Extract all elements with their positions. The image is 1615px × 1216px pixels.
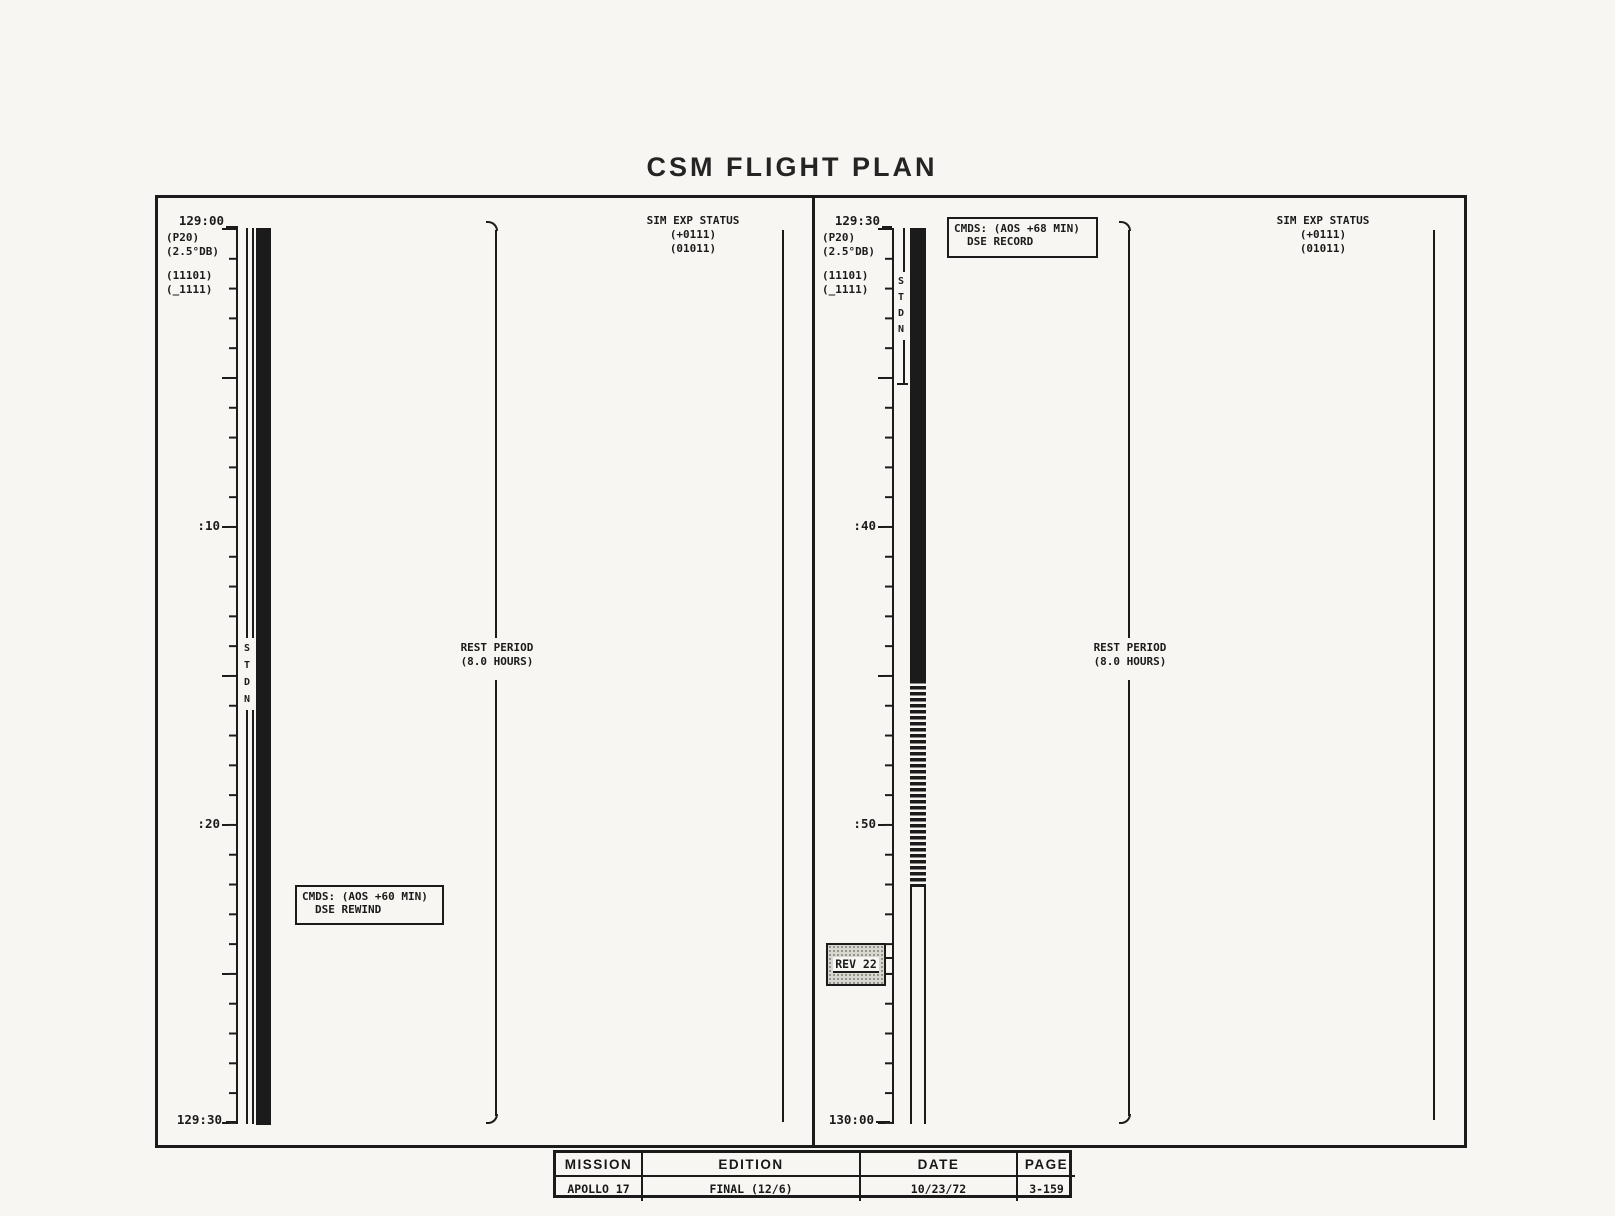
- footer-header-mission: MISSION: [556, 1153, 643, 1177]
- panel-divider: [812, 195, 815, 1148]
- flight-plan-page: CSM FLIGHT PLAN 129:00 (P20) (2.5°DB) (1…: [0, 0, 1615, 1216]
- cmds-line2-left: DSE REWIND: [302, 903, 442, 916]
- flight-plan-frame: [155, 195, 1467, 1148]
- tick-label-20-left: :20: [188, 817, 220, 831]
- footer-value-date: 10/23/72: [861, 1177, 1018, 1201]
- dse-open-bar-left-edge-right: [910, 887, 912, 1124]
- rest-bracket-upper-left: [495, 230, 497, 638]
- page-title: CSM FLIGHT PLAN: [592, 152, 992, 183]
- annotation-deadband-left: (2.5°DB): [166, 245, 219, 258]
- annotation-code1-right: (11101): [822, 269, 868, 282]
- rev-badge-connector-bottom: [886, 973, 893, 975]
- sim-exp-status-line1-right: (+0111): [1264, 228, 1382, 241]
- footer-value-page: 3-159: [1018, 1177, 1075, 1201]
- sim-exp-status-title-right: SIM EXP STATUS: [1264, 214, 1382, 227]
- sim-exp-status-line-right: [1433, 230, 1435, 1120]
- stdn-line-left-b-bottom: [252, 710, 254, 1124]
- rest-period-line2-right: (8.0 HOURS): [1070, 655, 1190, 668]
- five-minute-ticks-left: [222, 228, 229, 1125]
- footer-header-page: PAGE: [1018, 1153, 1075, 1177]
- stdn-line-left-a-bottom: [246, 710, 248, 1124]
- footer-table: MISSION EDITION DATE PAGE APOLLO 17 FINA…: [553, 1150, 1072, 1198]
- time-label-top-left: 129:00: [158, 214, 224, 228]
- footer-header-edition: EDITION: [643, 1153, 861, 1177]
- rest-period-line1-left: REST PERIOD: [437, 641, 557, 654]
- sim-exp-status-line2-right: (01011): [1264, 242, 1382, 255]
- annotation-code1-left: (11101): [166, 269, 212, 282]
- dse-open-bar-right-edge-right: [924, 887, 926, 1124]
- time-label-bottom-left: 129:30: [156, 1113, 222, 1127]
- stdn-label-right: STDN: [898, 274, 908, 338]
- dse-activity-bar-solid-right: [910, 228, 926, 680]
- annotation-p20-right: (P20): [822, 231, 855, 244]
- cmds-line1-right: CMDS: (AOS +68 MIN): [954, 222, 1096, 235]
- rest-bracket-upper-right: [1128, 230, 1130, 638]
- rest-bracket-lower-left: [495, 680, 497, 1116]
- sim-exp-status-line-left: [782, 230, 784, 1122]
- sim-exp-status-title-left: SIM EXP STATUS: [634, 214, 752, 227]
- footer-value-edition: FINAL (12/6): [643, 1177, 861, 1201]
- footer-value-mission: APOLLO 17: [556, 1177, 643, 1201]
- stdn-line-left-a-top: [246, 228, 248, 638]
- stdn-end-foot-right: [897, 383, 908, 385]
- rev-22-label: REV 22: [833, 957, 879, 973]
- timeline-axis-left: [236, 228, 238, 1124]
- stdn-line-left-b-top: [252, 228, 254, 638]
- annotation-code2-left: (_1111): [166, 283, 212, 296]
- footer-header-date: DATE: [861, 1153, 1018, 1177]
- rest-period-line2-left: (8.0 HOURS): [437, 655, 557, 668]
- time-label-bottom-right: 130:00: [808, 1113, 874, 1127]
- cmds-line1-left: CMDS: (AOS +60 MIN): [302, 890, 442, 903]
- tick-label-40-right: :40: [844, 519, 876, 533]
- annotation-deadband-right: (2.5°DB): [822, 245, 875, 258]
- rest-bracket-lower-right: [1128, 680, 1130, 1116]
- dse-activity-bar-striped-right: [910, 680, 926, 887]
- sim-exp-status-line1-left: (+0111): [634, 228, 752, 241]
- annotation-p20-left: (P20): [166, 231, 199, 244]
- time-leader-bottom-left: [226, 1121, 236, 1123]
- time-label-top-right: 129:30: [814, 214, 880, 228]
- timeline-axis-right: [892, 228, 894, 1124]
- rev-22-badge: REV 22: [826, 943, 886, 986]
- cmds-callout-right: CMDS: (AOS +68 MIN) DSE RECORD: [947, 217, 1098, 258]
- annotation-code2-right: (_1111): [822, 283, 868, 296]
- dse-activity-bar-left: [256, 228, 271, 1125]
- cmds-callout-left: CMDS: (AOS +60 MIN) DSE REWIND: [295, 885, 444, 925]
- rev-badge-connector-top: [886, 957, 893, 959]
- five-minute-ticks-right: [878, 228, 885, 1125]
- tick-label-50-right: :50: [844, 817, 876, 831]
- sim-exp-status-line2-left: (01011): [634, 242, 752, 255]
- stdn-label-left: STDN: [244, 640, 254, 708]
- time-leader-bottom-right: [876, 1121, 890, 1123]
- stdn-line-right-bottom: [903, 340, 905, 384]
- cmds-line2-right: DSE RECORD: [954, 235, 1096, 248]
- tick-label-10-left: :10: [188, 519, 220, 533]
- stdn-line-right-top: [903, 228, 905, 272]
- rest-period-line1-right: REST PERIOD: [1070, 641, 1190, 654]
